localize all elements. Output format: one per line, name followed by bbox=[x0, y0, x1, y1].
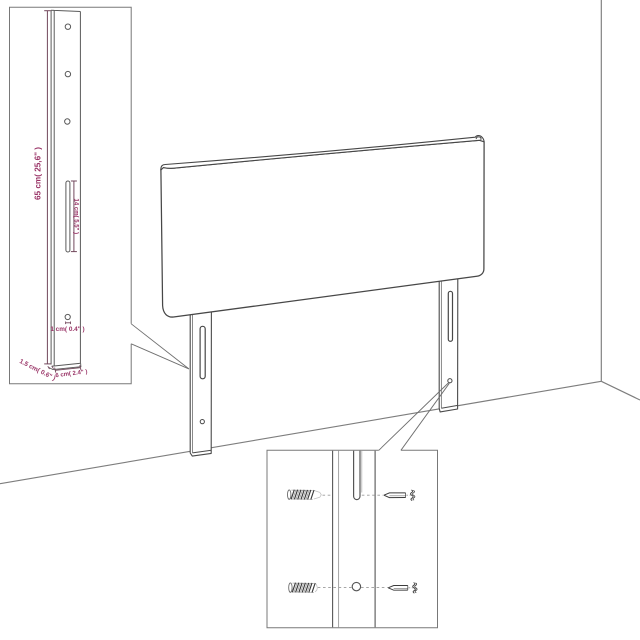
svg-text:65 cm( 25,6" ): 65 cm( 25,6" ) bbox=[34, 147, 43, 200]
svg-text:1 cm( 0.4" ): 1 cm( 0.4" ) bbox=[50, 326, 84, 333]
svg-text:14 cm( 5.5" ): 14 cm( 5.5" ) bbox=[73, 199, 79, 235]
